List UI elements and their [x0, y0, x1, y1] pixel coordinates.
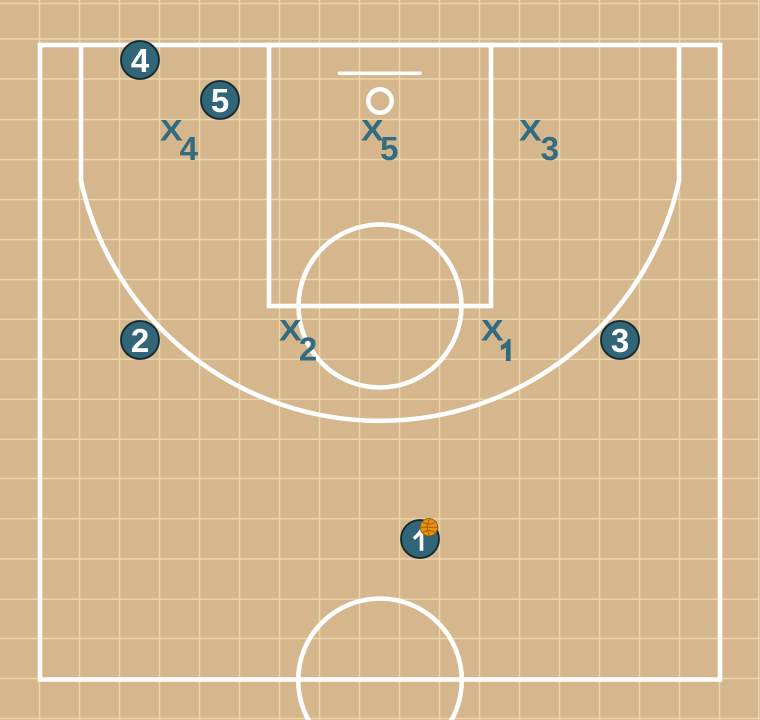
svg-text:X: X — [519, 115, 542, 148]
svg-text:5: 5 — [380, 130, 398, 167]
svg-text:2: 2 — [299, 330, 317, 367]
svg-text:4: 4 — [180, 130, 199, 167]
svg-text:X: X — [481, 315, 504, 348]
svg-text:3: 3 — [541, 130, 559, 167]
svg-text:5: 5 — [211, 82, 229, 119]
svg-text:2: 2 — [131, 322, 149, 359]
svg-text:4: 4 — [131, 42, 150, 79]
svg-text:3: 3 — [611, 322, 629, 359]
